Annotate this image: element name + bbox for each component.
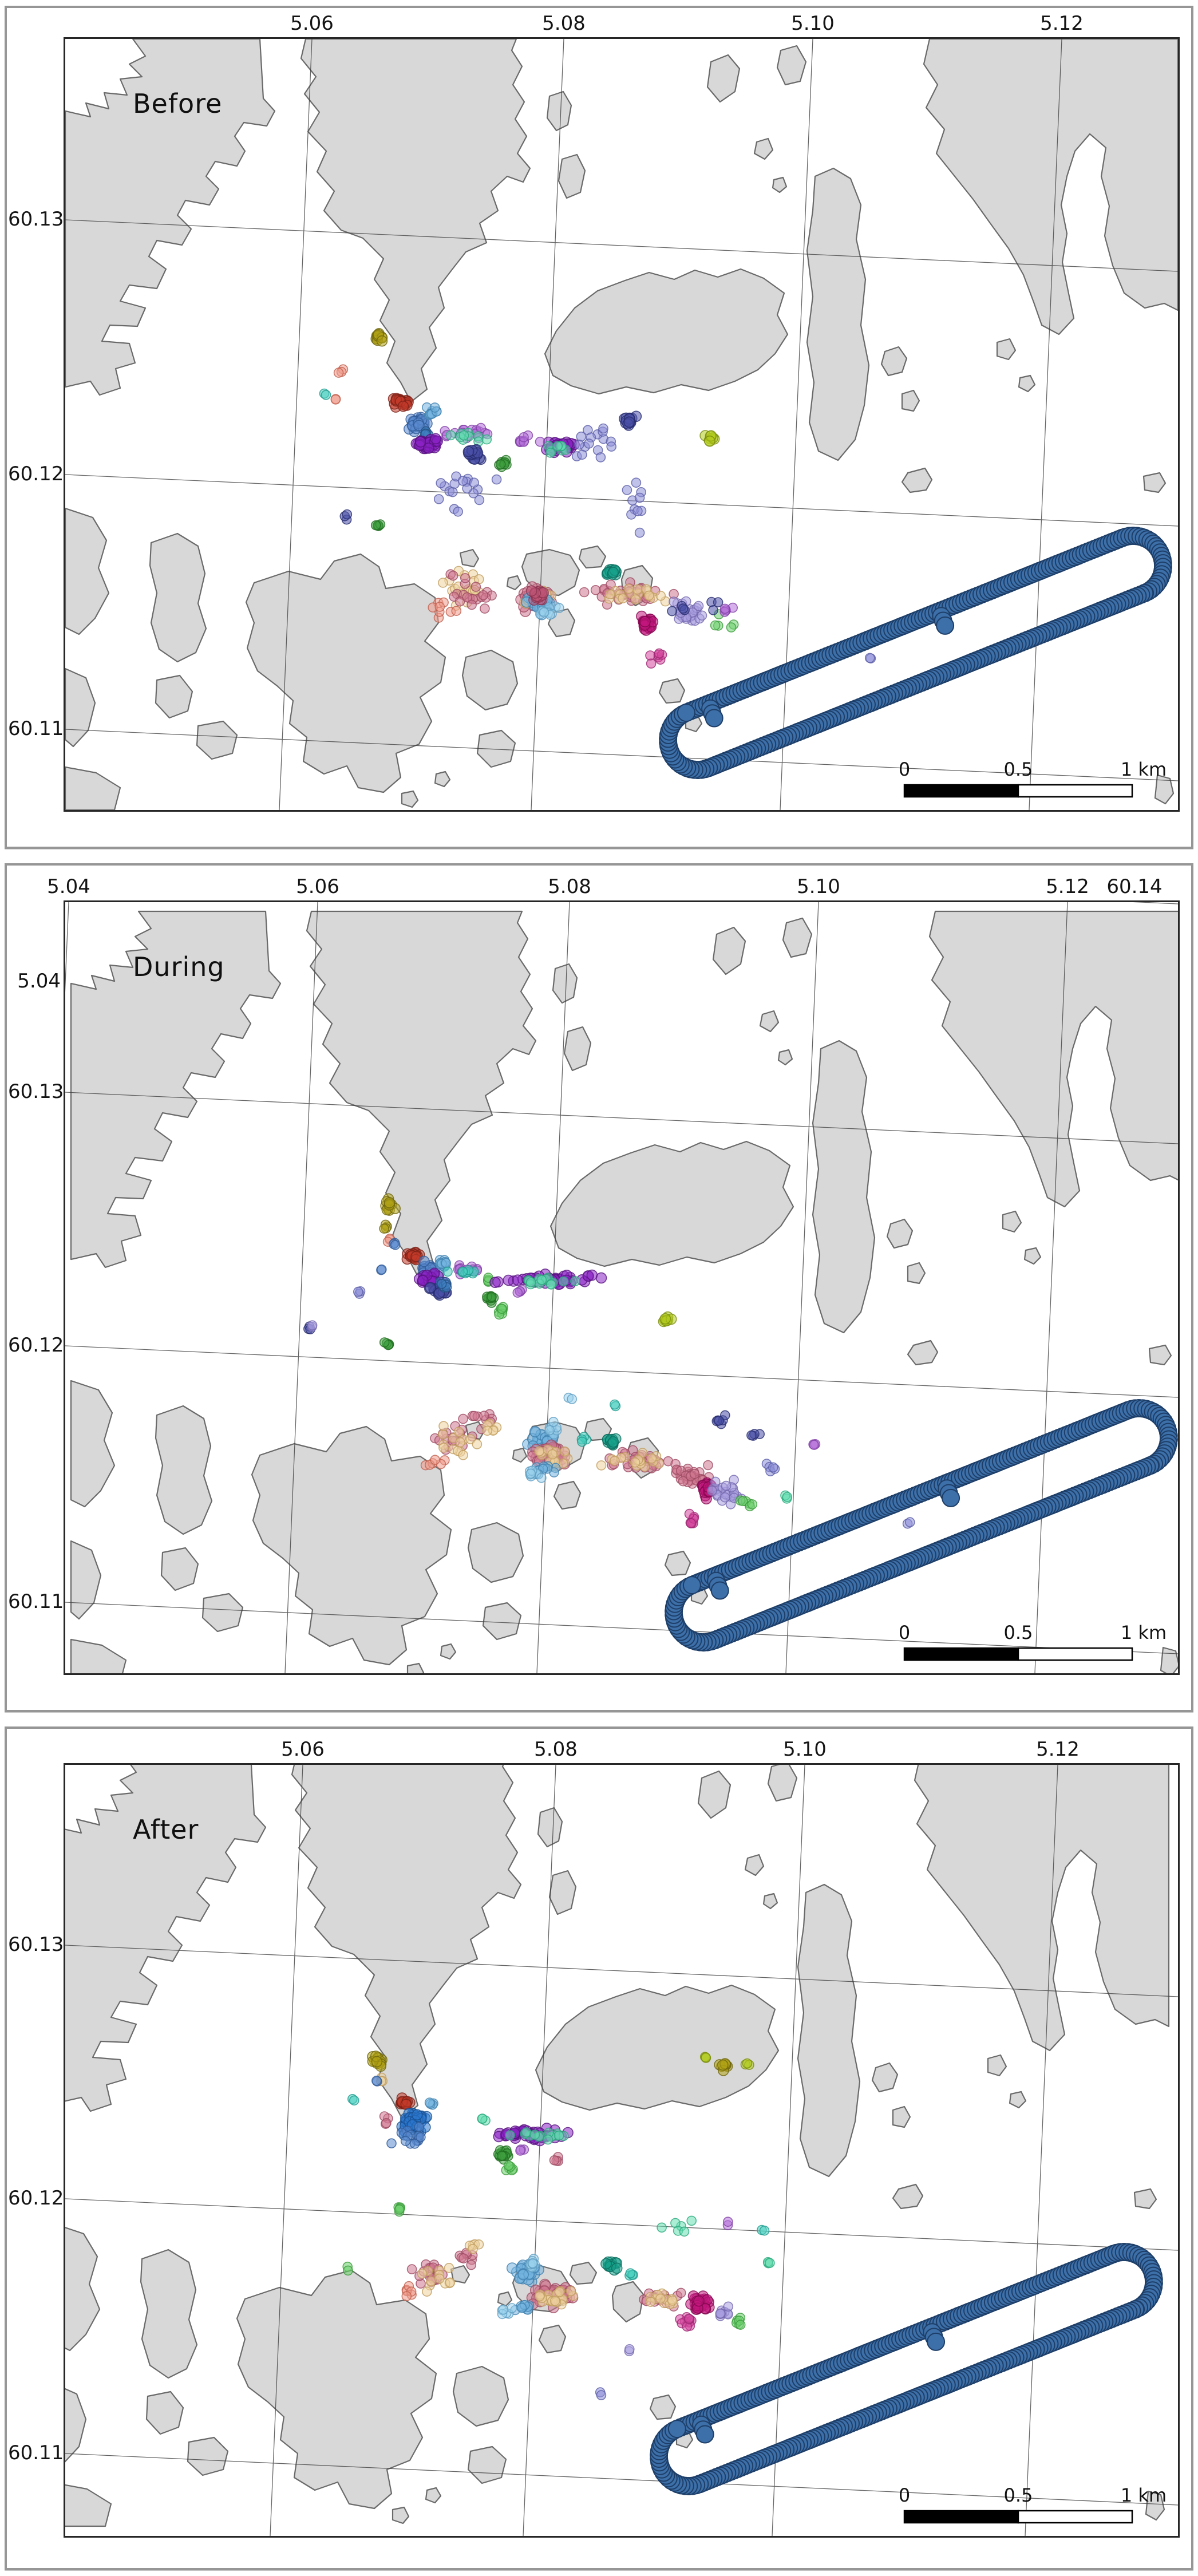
graticule-meridian	[531, 39, 564, 810]
fish-position-cluster	[636, 611, 658, 635]
fish-position-cluster	[527, 586, 549, 605]
land-polygon	[468, 2447, 506, 2483]
graticule-parallel	[65, 1346, 1178, 1397]
axis-label-top: 5.04	[29, 875, 109, 898]
fish-position-cluster	[354, 1287, 365, 1298]
land-polygon	[483, 1603, 521, 1639]
land-polygon	[71, 1639, 126, 1673]
scale-bar: 00.51 km	[899, 2484, 1167, 2523]
land-polygon	[551, 1141, 793, 1266]
map-canvas: 00.51 km	[65, 39, 1178, 810]
land-polygon	[773, 177, 786, 192]
fish-position-cluster	[723, 2217, 733, 2230]
axis-label-top: 5.08	[516, 1738, 596, 1761]
map-frame: 00.51 kmAfter	[64, 1763, 1180, 2538]
land-polygon	[745, 1855, 764, 1875]
axis-label-top: 5.10	[773, 12, 853, 35]
land-polygon	[402, 791, 418, 807]
land-polygon	[564, 1027, 591, 1070]
land-polygon	[997, 339, 1015, 359]
land-polygon	[141, 2250, 197, 2378]
fish-position-cluster	[331, 394, 340, 404]
fish-position-cluster	[379, 1220, 392, 1233]
graticule-meridian	[772, 1765, 805, 2536]
graticule-parallel	[65, 2199, 1178, 2250]
fish-position-cluster	[715, 2302, 733, 2321]
graticule-parallel	[65, 902, 1178, 904]
fish-position-cluster	[700, 430, 719, 447]
land-polygon	[713, 927, 745, 974]
fish-position-cluster	[624, 2345, 634, 2356]
axis-label-left: 5.04	[8, 970, 61, 993]
land-polygon	[237, 2270, 436, 2508]
fish-position-cluster	[762, 1459, 780, 1476]
graticule-meridian	[65, 902, 69, 1673]
axis-label-top: 5.06	[278, 875, 358, 898]
land-polygon	[246, 554, 445, 792]
graticule-meridian	[780, 39, 813, 810]
fish-position-cluster	[732, 2313, 745, 2329]
fish-position-cluster	[809, 1440, 820, 1449]
panel-title: Before	[133, 88, 222, 119]
land-polygon	[161, 1548, 198, 1590]
axis-label-left: 60.13	[8, 208, 61, 231]
fish-position-cluster	[394, 2203, 405, 2217]
land-polygon	[930, 911, 1178, 1207]
axis-label-left: 60.12	[8, 1334, 61, 1357]
land-polygon	[203, 1594, 243, 1631]
land-polygon	[147, 2392, 183, 2434]
land-polygon	[887, 1219, 912, 1248]
scale-bar: 00.51 km	[899, 758, 1167, 797]
fish-position-cluster	[389, 393, 414, 412]
land-polygon	[553, 964, 577, 1003]
scale-bar-label: 0.5	[1004, 758, 1033, 780]
land-polygon	[778, 1050, 792, 1065]
axis-label-top: 5.12	[1022, 12, 1102, 35]
land-polygon	[197, 721, 237, 759]
fish-position-cluster	[550, 2152, 563, 2166]
fish-position-cluster	[371, 329, 387, 346]
land-polygon	[698, 1771, 730, 1818]
land-polygon	[612, 2282, 643, 2322]
axis-label-left: 60.11	[8, 717, 61, 740]
land-polygon	[188, 2437, 228, 2475]
fish-position-cluster	[720, 603, 737, 617]
fish-position-cluster	[497, 2304, 516, 2318]
land-polygon	[764, 1894, 777, 1909]
land-polygon	[468, 1523, 523, 1582]
fish-position-cluster	[603, 1434, 621, 1451]
land-polygon	[1019, 376, 1035, 392]
axis-label-top: 5.10	[778, 875, 859, 898]
land-polygon	[754, 139, 773, 159]
land-polygons	[65, 1765, 1169, 2526]
fish-position-cluster	[495, 456, 511, 472]
fish-position-cluster	[516, 431, 545, 447]
fish-position-cluster	[389, 1238, 400, 1250]
land-polygon	[707, 55, 740, 102]
land-polygon	[1134, 2189, 1156, 2208]
fish-position-cluster	[619, 411, 642, 430]
fish-position-cluster	[675, 2313, 696, 2331]
land-polygon	[988, 2055, 1006, 2076]
land-polygon	[156, 675, 192, 718]
fish-position-cluster	[483, 1291, 499, 1307]
fish-position-cluster	[340, 510, 351, 524]
land-polygon	[813, 1041, 875, 1333]
fish-position-cluster	[513, 1285, 527, 1297]
land-polygon	[549, 1871, 576, 1914]
axis-label-left: 60.12	[8, 2187, 61, 2210]
fish-position-cluster	[736, 1496, 757, 1511]
land-polygon	[902, 390, 919, 411]
axis-label-left: 60.13	[8, 1080, 61, 1103]
land-polygon	[435, 772, 450, 787]
land-polygon	[301, 39, 530, 402]
land-polygon	[1144, 473, 1165, 492]
axis-label-left: 60.11	[8, 2441, 61, 2464]
vessel-track	[665, 1400, 1177, 1651]
fish-position-cluster	[372, 2076, 382, 2086]
land-polygon	[507, 576, 521, 590]
fish-position-cluster	[535, 2286, 578, 2309]
land-polygon	[783, 918, 812, 957]
land-polygon	[1161, 1647, 1178, 1673]
scale-bar-label: 0	[899, 2484, 910, 2506]
land-polygon	[65, 2385, 86, 2463]
scale-bar-label: 1 km	[1121, 2484, 1167, 2506]
fish-position-cluster	[483, 1419, 501, 1435]
fish-position-cluster	[564, 1393, 576, 1404]
land-polygon	[71, 1381, 114, 1507]
land-polygon	[1149, 1345, 1171, 1365]
fish-position-cluster	[377, 1265, 386, 1275]
fish-position-cluster	[602, 564, 622, 580]
land-polygon	[292, 1765, 521, 2118]
land-polygon	[252, 1427, 451, 1665]
land-polygon	[408, 1664, 424, 1673]
axis-label-top: 5.06	[272, 12, 352, 35]
vessel-track	[659, 527, 1172, 779]
land-polygon	[768, 1765, 797, 1801]
axis-label-left: 60.11	[8, 1590, 61, 1613]
graticule-parallel	[65, 475, 1178, 526]
fish-position-cluster	[601, 2257, 622, 2275]
land-polygon	[579, 546, 606, 568]
land-polygon	[908, 1341, 938, 1365]
map-panel-before: 5.065.085.105.1260.1360.1260.1100.51 kmB…	[5, 6, 1193, 849]
fish-position-cluster	[596, 2388, 606, 2400]
scale-bar-label: 0	[899, 1622, 910, 1643]
axis-label-left: 60.13	[8, 1933, 61, 1956]
axis-label-top: 60.14	[1094, 875, 1175, 898]
fish-position-cluster	[659, 1312, 677, 1327]
panel-title: During	[133, 951, 225, 982]
fish-position-cluster	[402, 2282, 416, 2301]
land-polygon	[536, 1985, 778, 2110]
land-polygon	[665, 1551, 690, 1575]
land-polygon	[777, 46, 806, 85]
fish-position-cluster	[572, 424, 616, 462]
fish-position-cluster	[622, 478, 646, 537]
land-polygon	[881, 347, 907, 376]
map-frame: 00.51 kmDuring	[64, 900, 1180, 1675]
scale-bar: 00.51 km	[899, 1622, 1167, 1660]
fish-position-cluster	[387, 2123, 425, 2148]
land-polygon	[539, 2325, 566, 2353]
fish-position-cluster	[320, 389, 331, 400]
land-polygon	[915, 1765, 1169, 2050]
land-polygon	[65, 669, 95, 746]
fish-position-cluster	[865, 653, 876, 663]
land-polygon	[570, 2262, 596, 2284]
fish-position-cluster	[516, 2145, 528, 2155]
map-panel-during: 5.045.065.085.105.1260.145.0460.1360.126…	[5, 863, 1193, 1712]
land-polygon	[71, 1541, 101, 1619]
fish-position-cluster	[610, 1400, 620, 1411]
land-polygon	[545, 269, 788, 394]
land-polygon	[453, 2366, 508, 2426]
land-polygon	[807, 168, 869, 460]
land-polygon	[150, 534, 206, 662]
axis-label-top: 5.06	[263, 1738, 343, 1761]
land-polygon	[893, 2107, 910, 2127]
land-polygon	[513, 1448, 527, 1462]
scale-bar-label: 0.5	[1004, 1622, 1033, 1643]
land-polygon	[760, 1011, 778, 1032]
panel-title: After	[133, 1814, 199, 1845]
fish-position-cluster	[463, 445, 486, 465]
fish-position-cluster	[781, 1491, 792, 1503]
fish-position-cluster	[685, 1510, 699, 1528]
fish-position-cluster	[380, 1338, 394, 1350]
fish-position-cluster	[422, 403, 441, 420]
fish-position-cluster	[686, 2291, 714, 2314]
land-polygon	[902, 468, 932, 492]
land-polygon	[65, 767, 120, 810]
fish-position-cluster	[334, 365, 348, 377]
graticule-meridian	[786, 902, 819, 1673]
map-canvas: 00.51 km	[65, 1765, 1178, 2536]
land-polygon	[1025, 1248, 1041, 1264]
land-polygon	[554, 1481, 580, 1509]
fish-position-cluster	[903, 1518, 915, 1528]
land-polygon	[1003, 1211, 1021, 1232]
fish-position-cluster	[625, 2269, 638, 2280]
land-polygon	[65, 2483, 111, 2526]
land-polygon	[441, 1644, 456, 1659]
fish-position-cluster	[343, 2262, 353, 2275]
land-polygon	[872, 2063, 897, 2092]
land-polygon	[547, 92, 571, 131]
land-polygon	[893, 2184, 923, 2208]
fish-position-cluster	[477, 2114, 490, 2125]
fish-position-cluster	[657, 2216, 696, 2236]
fish-position-cluster	[757, 2226, 769, 2235]
land-polygon	[908, 1263, 925, 1283]
vessel-track	[650, 2243, 1163, 2495]
fish-position-cluster	[371, 520, 385, 531]
axis-label-top: 5.10	[765, 1738, 845, 1761]
land-polygon	[65, 2225, 100, 2350]
fish-position-cluster	[604, 584, 670, 606]
fish-position-cluster	[764, 2258, 774, 2268]
fish-position-cluster	[307, 1321, 317, 1332]
land-polygon	[650, 2395, 675, 2419]
land-polygon	[156, 1406, 212, 1534]
land-polygon	[460, 550, 479, 567]
land-polygon	[393, 2507, 409, 2523]
map-frame: 00.51 kmBefore	[64, 37, 1180, 812]
axis-label-top: 5.08	[524, 12, 604, 35]
fish-position-cluster	[712, 1411, 730, 1428]
scale-bar-label: 0	[899, 758, 910, 780]
fish-position-cluster	[348, 2095, 359, 2105]
land-polygon	[462, 650, 517, 710]
fish-position-cluster	[425, 2098, 438, 2109]
land-polygon	[798, 1884, 860, 2176]
land-polygon	[426, 2488, 441, 2503]
fish-position-cluster	[747, 1429, 764, 1440]
map-panel-after: 5.065.085.105.1260.1360.1260.1100.51 kmA…	[5, 1726, 1193, 2570]
fish-position-cluster	[646, 649, 667, 668]
axis-label-left: 60.12	[8, 463, 61, 485]
land-polygons	[71, 911, 1178, 1673]
fish-position-cluster	[443, 1266, 479, 1278]
land-polygon	[538, 1808, 562, 1847]
land-polygon	[65, 508, 109, 634]
land-polygon	[659, 679, 685, 703]
fish-position-cluster	[380, 2112, 393, 2128]
land-polygon	[307, 911, 536, 1274]
axis-label-top: 5.12	[1018, 1738, 1098, 1761]
axis-label-top: 5.08	[529, 875, 610, 898]
fish-position-cluster	[495, 1302, 508, 1319]
scale-bar-label: 0.5	[1004, 2484, 1033, 2506]
scale-bar-label: 1 km	[1121, 758, 1167, 780]
land-polygon	[559, 155, 585, 198]
map-canvas: 00.51 km	[65, 902, 1178, 1673]
scale-bar-label: 1 km	[1121, 1622, 1167, 1643]
land-polygon	[1010, 2092, 1026, 2108]
